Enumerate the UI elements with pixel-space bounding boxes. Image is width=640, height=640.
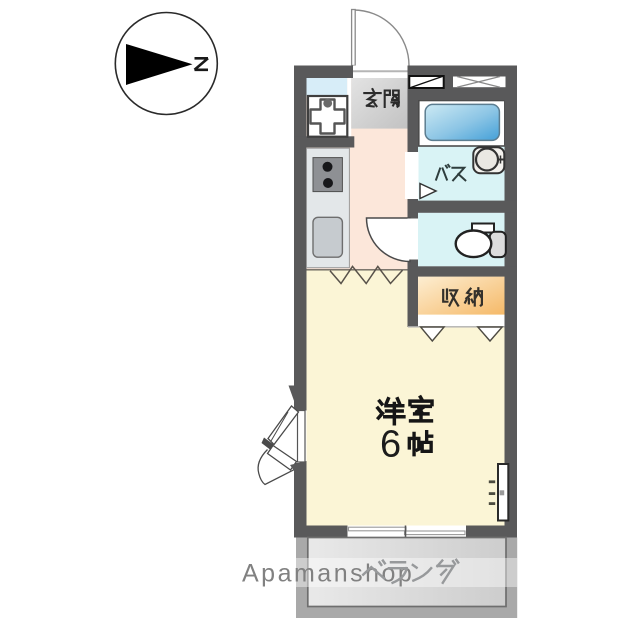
svg-text:Apamanshop: Apamanshop (242, 560, 414, 588)
svg-text:6: 6 (380, 424, 401, 466)
